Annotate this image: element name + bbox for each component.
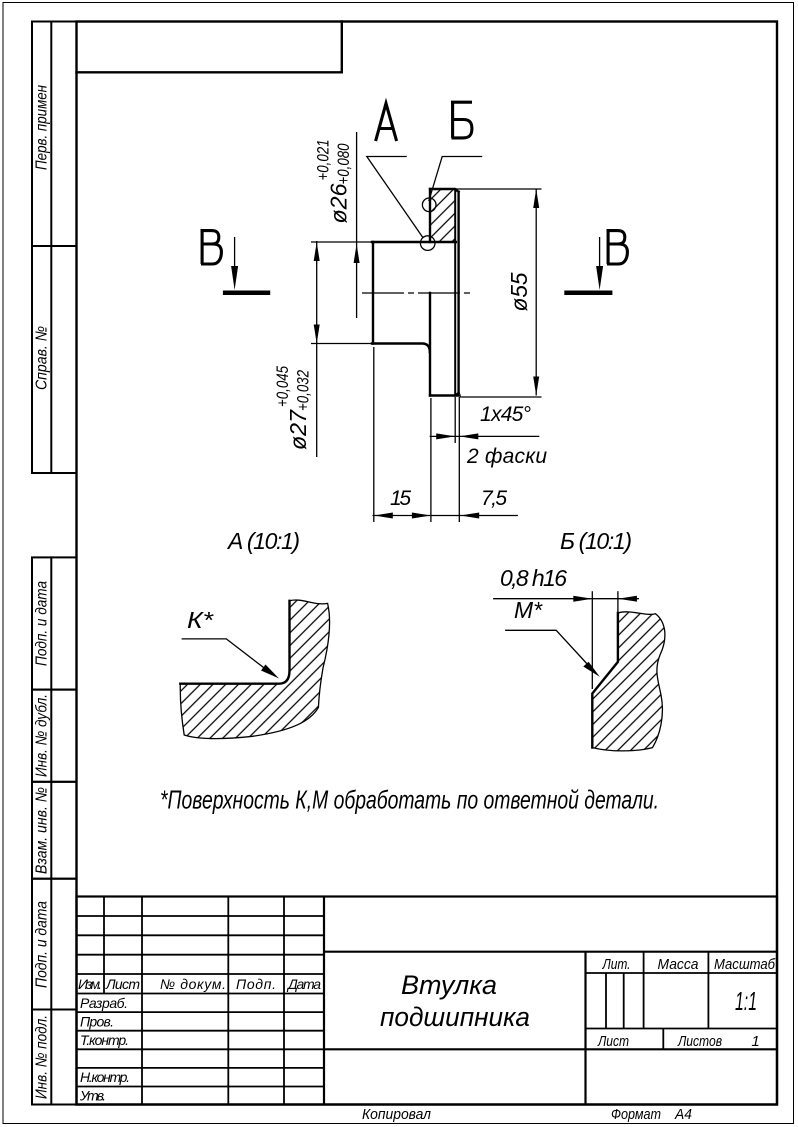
svg-text:2 фаски: 2 фаски: [466, 445, 547, 468]
svg-text:ø27: ø27: [285, 409, 311, 450]
svg-text:Масштаб: Масштаб: [714, 956, 775, 973]
svg-text:Перв. примен: Перв. примен: [34, 85, 51, 170]
svg-text:+0,045: +0,045: [274, 365, 292, 407]
svg-text:подшипника: подшипника: [380, 1002, 530, 1032]
svg-text:1: 1: [751, 1033, 759, 1050]
svg-text:*Поверхность К,М обработать по: *Поверхность К,М обработать по ответной …: [160, 785, 659, 815]
svg-text:Копировал: Копировал: [362, 1106, 431, 1123]
svg-text:№ докум.: № докум.: [160, 976, 226, 992]
svg-text:Утв.: Утв.: [79, 1088, 106, 1104]
svg-text:Дата: Дата: [286, 976, 321, 992]
svg-text:Подп. и дата: Подп. и дата: [34, 901, 51, 988]
svg-text:К*: К*: [187, 607, 214, 633]
svg-text:Подп.: Подп.: [236, 976, 276, 992]
svg-text:Инв. № дубл.: Инв. № дубл.: [34, 694, 51, 777]
svg-text:Разраб.: Разраб.: [80, 995, 128, 1011]
svg-text:Лист: Лист: [105, 976, 140, 992]
svg-text:Пров.: Пров.: [80, 1014, 114, 1030]
svg-text:Втулка: Втулка: [401, 970, 497, 1000]
svg-text:Справ. №: Справ. №: [34, 326, 51, 390]
svg-text:М*: М*: [514, 597, 543, 623]
svg-text:0,8 h16: 0,8 h16: [500, 565, 567, 591]
svg-text:Подп. и дата: Подп. и дата: [34, 581, 51, 666]
svg-text:Листов: Листов: [677, 1033, 722, 1050]
svg-text:+0,080: +0,080: [335, 143, 353, 185]
svg-text:Лит.: Лит.: [602, 956, 631, 973]
svg-text:Б (10:1): Б (10:1): [560, 528, 632, 554]
svg-text:+0,032: +0,032: [295, 370, 313, 411]
svg-text:ø26: ø26: [326, 183, 352, 223]
svg-text:А (10:1): А (10:1): [226, 528, 300, 554]
svg-text:Инв. № подл.: Инв. № подл.: [34, 1015, 51, 1099]
svg-text:Н.контр.: Н.контр.: [80, 1069, 130, 1085]
svg-text:Лист: Лист: [597, 1033, 629, 1050]
svg-text:15: 15: [390, 487, 411, 510]
svg-text:Формат: Формат: [611, 1106, 661, 1123]
svg-text:А4: А4: [674, 1106, 692, 1123]
svg-text:ø55: ø55: [506, 272, 532, 311]
svg-text:7,5: 7,5: [481, 487, 507, 510]
svg-text:1:1: 1:1: [735, 986, 757, 1016]
svg-text:Взам. инв. №: Взам. инв. №: [34, 787, 51, 874]
svg-text:Изм.: Изм.: [78, 976, 102, 992]
svg-text:+0,021: +0,021: [315, 140, 333, 181]
svg-text:1x45°: 1x45°: [480, 403, 531, 426]
svg-text:Масса: Масса: [658, 956, 699, 973]
svg-text:Т.контр.: Т.контр.: [80, 1032, 129, 1048]
